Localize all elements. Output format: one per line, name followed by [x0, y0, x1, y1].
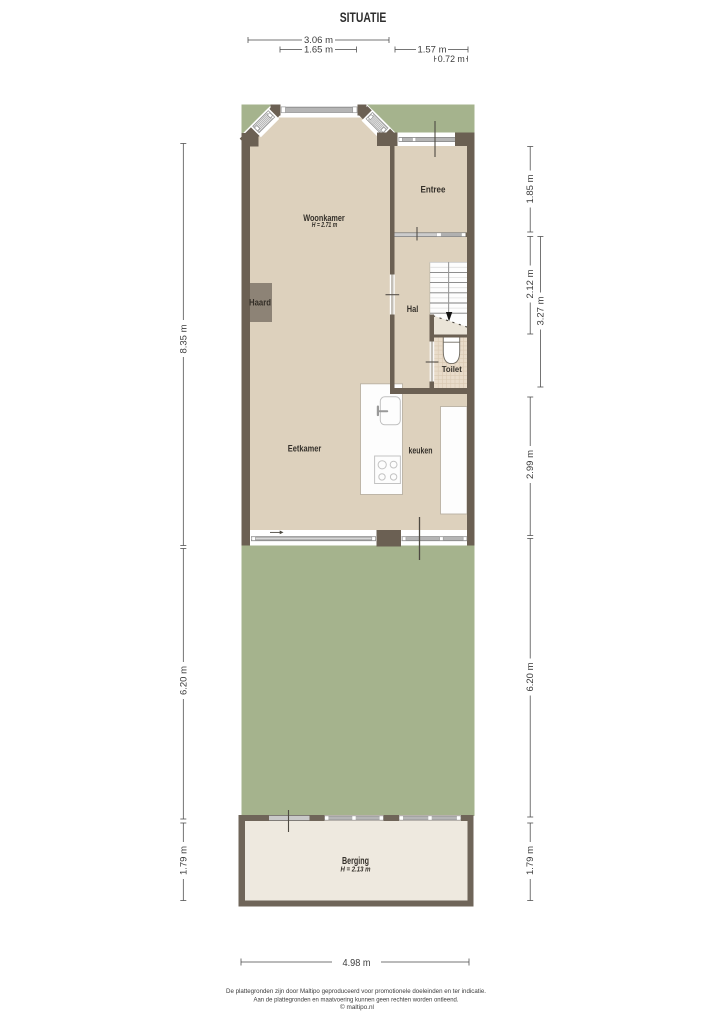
svg-text:Eetkamer: Eetkamer — [288, 444, 322, 455]
svg-text:6.20 m: 6.20 m — [525, 662, 536, 691]
svg-text:SITUATIE: SITUATIE — [340, 10, 387, 25]
svg-text:2.12 m: 2.12 m — [525, 269, 536, 298]
svg-text:© maltipo.nl: © maltipo.nl — [340, 1003, 374, 1011]
svg-text:Entree: Entree — [421, 185, 446, 196]
svg-text:8.35 m: 8.35 m — [178, 324, 189, 353]
svg-text:Hal: Hal — [407, 304, 419, 315]
svg-text:2.99 m: 2.99 m — [525, 450, 536, 479]
svg-text:Aan de plattegronden en maatvo: Aan de plattegronden en maatvoering kunn… — [254, 996, 459, 1003]
svg-text:1.85 m: 1.85 m — [525, 174, 536, 203]
svg-text:0.72 m: 0.72 m — [438, 54, 465, 65]
svg-text:H = 2.13 m: H = 2.13 m — [341, 867, 371, 874]
svg-text:De plattegronden zijn door Mal: De plattegronden zijn door Maltipo gepro… — [226, 988, 486, 995]
svg-text:keuken: keuken — [409, 446, 433, 457]
svg-text:H = 2.71 m: H = 2.71 m — [312, 222, 338, 229]
svg-text:1.79 m: 1.79 m — [178, 846, 189, 875]
svg-text:3.27 m: 3.27 m — [535, 296, 546, 325]
svg-text:6.20 m: 6.20 m — [178, 666, 189, 695]
svg-text:Berging: Berging — [342, 856, 369, 867]
svg-text:Toilet: Toilet — [442, 364, 462, 374]
svg-text:4.98 m: 4.98 m — [343, 958, 371, 969]
svg-text:Haard: Haard — [249, 298, 271, 308]
svg-text:1.79 m: 1.79 m — [525, 846, 536, 875]
svg-text:1.65 m: 1.65 m — [304, 45, 333, 56]
